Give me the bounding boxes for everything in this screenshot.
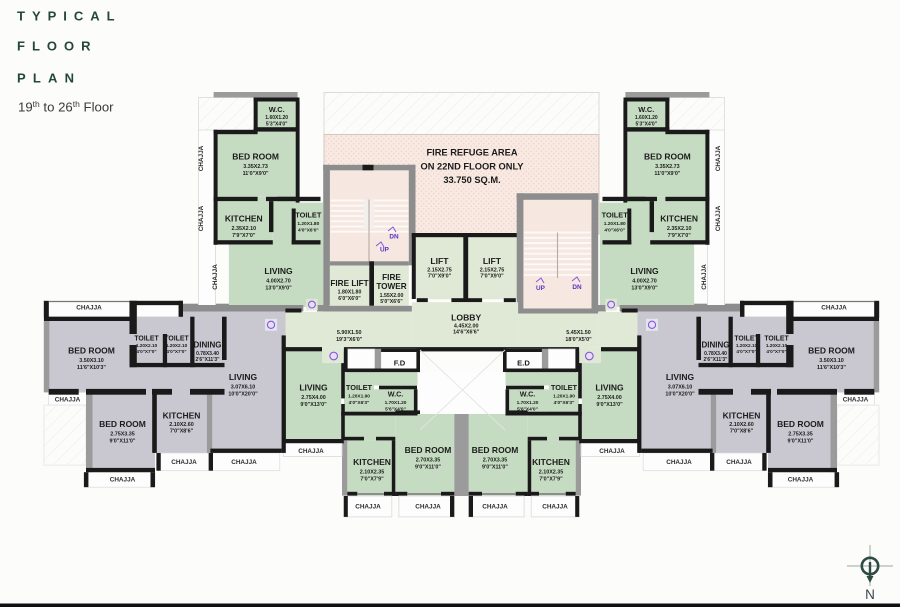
svg-text:CHAJJA: CHAJJA	[171, 459, 197, 466]
svg-text:1.70X1.20: 1.70X1.20	[517, 400, 539, 406]
svg-text:LIFT: LIFT	[430, 256, 449, 266]
svg-text:E.D: E.D	[517, 359, 530, 368]
svg-text:4.00X2.70: 4.00X2.70	[266, 279, 291, 285]
svg-text:2.35X2.10: 2.35X2.10	[232, 226, 257, 232]
svg-text:0.78X3.40: 0.78X3.40	[704, 351, 727, 357]
svg-text:3.35X2.73: 3.35X2.73	[655, 164, 680, 170]
svg-text:KITCHEN: KITCHEN	[723, 411, 761, 421]
svg-text:5'6"X4'0": 5'6"X4'0"	[385, 406, 406, 412]
svg-text:1.20X1.80: 1.20X1.80	[604, 221, 626, 227]
svg-text:9'0"X13'0": 9'0"X13'0"	[300, 402, 327, 408]
svg-text:BED ROOM: BED ROOM	[644, 152, 691, 162]
svg-text:5'3"X4'0": 5'3"X4'0"	[636, 122, 658, 128]
svg-text:10'0"X20'0": 10'0"X20'0"	[665, 391, 695, 397]
svg-text:CHAJJA: CHAJJA	[198, 205, 205, 231]
svg-text:CHAJJA: CHAJJA	[110, 477, 136, 484]
svg-text:2.10X2.60: 2.10X2.60	[169, 422, 194, 428]
svg-text:11'6"X10'3": 11'6"X10'3"	[817, 365, 846, 371]
svg-text:LIVING: LIVING	[229, 372, 258, 382]
svg-text:LIVING: LIVING	[264, 266, 293, 276]
svg-text:7'0"X9'0": 7'0"X9'0"	[428, 274, 452, 280]
svg-text:14'6"X6'6": 14'6"X6'6"	[453, 329, 480, 335]
svg-text:2.10X2.35: 2.10X2.35	[539, 469, 564, 475]
svg-text:TYPICAL: TYPICAL	[17, 8, 122, 23]
svg-text:TOWER: TOWER	[376, 282, 406, 291]
svg-text:BED ROOM: BED ROOM	[777, 419, 824, 429]
svg-text:CHAJJA: CHAJJA	[55, 397, 81, 404]
svg-text:W.C.: W.C.	[638, 105, 654, 114]
svg-text:7'0"X7'9": 7'0"X7'9"	[360, 476, 384, 482]
svg-text:2.75X3.35: 2.75X3.35	[788, 432, 813, 438]
svg-text:5'3"X4'0": 5'3"X4'0"	[266, 122, 288, 128]
svg-text:11'0"X9'0": 11'0"X9'0"	[654, 171, 680, 177]
svg-text:W.C.: W.C.	[388, 390, 404, 399]
svg-text:4.00X2.70: 4.00X2.70	[632, 279, 657, 285]
svg-text:TOILET: TOILET	[346, 383, 373, 392]
svg-text:5'0"X6'6": 5'0"X6'6"	[380, 299, 403, 305]
svg-text:LOBBY: LOBBY	[451, 313, 481, 323]
svg-text:9'0"X11'0": 9'0"X11'0"	[482, 464, 508, 470]
svg-text:CHAJJA: CHAJJA	[701, 264, 708, 290]
svg-text:UP: UP	[536, 285, 546, 292]
svg-text:CHAJJA: CHAJJA	[666, 459, 692, 466]
svg-text:3.50X3.10: 3.50X3.10	[819, 358, 844, 364]
svg-text:CHAJJA: CHAJJA	[415, 503, 441, 510]
svg-text:DN: DN	[389, 234, 399, 241]
svg-text:CHAJJA: CHAJJA	[788, 477, 814, 484]
svg-text:LIVING: LIVING	[630, 266, 659, 276]
svg-text:4'0"X6'3": 4'0"X6'3"	[349, 400, 370, 406]
svg-text:1.20X1.90: 1.20X1.90	[348, 394, 370, 400]
svg-text:CHAJJA: CHAJJA	[599, 448, 625, 455]
svg-text:2.10X2.35: 2.10X2.35	[360, 469, 385, 475]
svg-text:4'0"X7'0": 4'0"X7'0"	[736, 349, 756, 354]
svg-text:CHAJJA: CHAJJA	[76, 305, 102, 312]
svg-text:4'0"X6'0": 4'0"X6'0"	[604, 228, 625, 234]
svg-text:1.20X2.10: 1.20X2.10	[766, 343, 788, 348]
svg-text:W.C.: W.C.	[269, 105, 285, 114]
svg-text:BED ROOM: BED ROOM	[68, 346, 115, 356]
svg-text:7'9"X7'0": 7'9"X7'0"	[232, 233, 256, 239]
svg-text:7'0"X8'6": 7'0"X8'6"	[730, 429, 754, 435]
svg-text:TOILET: TOILET	[764, 336, 789, 343]
svg-text:4'0"X6'0": 4'0"X6'0"	[298, 228, 319, 234]
svg-text:CHAJJA: CHAJJA	[843, 397, 869, 404]
svg-text:CHAJJA: CHAJJA	[715, 145, 722, 171]
svg-text:2.15X2.75: 2.15X2.75	[427, 267, 452, 273]
svg-text:2.70X3.35: 2.70X3.35	[483, 457, 508, 463]
svg-text:1.60X1.20: 1.60X1.20	[635, 115, 658, 121]
svg-text:FIRE LIFT: FIRE LIFT	[330, 279, 368, 288]
svg-text:BED ROOM: BED ROOM	[808, 346, 855, 356]
svg-text:CHAJJA: CHAJJA	[726, 459, 752, 466]
svg-text:TOILET: TOILET	[734, 336, 759, 343]
svg-text:1.70X1.20: 1.70X1.20	[385, 400, 407, 406]
svg-text:9'0"X11'0": 9'0"X11'0"	[788, 439, 814, 445]
svg-text:N: N	[865, 587, 875, 602]
svg-text:CHAJJA: CHAJJA	[355, 503, 381, 510]
svg-text:FIRE REFUGE AREA: FIRE REFUGE AREA	[426, 148, 517, 158]
svg-text:2.35X2.10: 2.35X2.10	[667, 226, 692, 232]
svg-text:4'0"X7'0": 4'0"X7'0"	[136, 349, 156, 354]
svg-text:3.07X6.10: 3.07X6.10	[668, 384, 693, 390]
svg-text:2.15X2.75: 2.15X2.75	[480, 267, 505, 273]
svg-text:1.20X1.80: 1.20X1.80	[297, 221, 319, 227]
svg-text:1.20X2.10: 1.20X2.10	[166, 343, 188, 348]
svg-text:FIRE: FIRE	[382, 273, 401, 282]
svg-text:9'0"X11'0": 9'0"X11'0"	[110, 439, 136, 445]
svg-text:7'9"X7'0": 7'9"X7'0"	[668, 233, 692, 239]
svg-text:9'0"X13'0": 9'0"X13'0"	[596, 402, 623, 408]
svg-text:CHAJJA: CHAJJA	[212, 264, 219, 290]
svg-text:CHAJJA: CHAJJA	[715, 205, 722, 231]
svg-text:LIVING: LIVING	[299, 383, 328, 393]
svg-text:5.45X1.50: 5.45X1.50	[566, 330, 591, 336]
svg-text:10'0"X20'0": 10'0"X20'0"	[228, 391, 258, 397]
svg-text:LIVING: LIVING	[666, 372, 695, 382]
svg-text:KITCHEN: KITCHEN	[225, 214, 263, 224]
svg-text:1.20X2.10: 1.20X2.10	[136, 343, 158, 348]
svg-text:11'0"X9'0": 11'0"X9'0"	[243, 171, 269, 177]
svg-text:TOILET: TOILET	[551, 383, 578, 392]
svg-text:KITCHEN: KITCHEN	[353, 457, 391, 467]
svg-text:1.60X1.20: 1.60X1.20	[265, 115, 288, 121]
svg-text:ON 22ND FLOOR ONLY: ON 22ND FLOOR ONLY	[421, 161, 525, 171]
svg-text:3.07X6.10: 3.07X6.10	[231, 384, 256, 390]
svg-text:DINING: DINING	[702, 341, 730, 350]
svg-text:7'0"X9'0": 7'0"X9'0"	[480, 274, 504, 280]
svg-text:BED ROOM: BED ROOM	[99, 419, 146, 429]
svg-text:19'3"X6'0": 19'3"X6'0"	[336, 337, 363, 343]
svg-text:CHAJJA: CHAJJA	[198, 145, 205, 171]
svg-text:4'0"X7'0": 4'0"X7'0"	[766, 349, 786, 354]
svg-text:1.55X2.00: 1.55X2.00	[380, 293, 404, 299]
svg-text:2.70X3.35: 2.70X3.35	[416, 457, 441, 463]
svg-text:2'6"X11'3": 2'6"X11'3"	[195, 357, 220, 363]
svg-text:4'0"X6'3": 4'0"X6'3"	[554, 400, 575, 406]
svg-text:DN: DN	[572, 284, 582, 291]
svg-text:KITCHEN: KITCHEN	[660, 214, 698, 224]
svg-text:DINING: DINING	[194, 341, 222, 350]
svg-text:6'0"X6'0": 6'0"X6'0"	[338, 296, 361, 302]
svg-text:19th to 26th Floor: 19th to 26th Floor	[18, 99, 114, 115]
svg-text:LIVING: LIVING	[595, 383, 624, 393]
svg-text:1.20X2.10: 1.20X2.10	[736, 343, 758, 348]
svg-text:2.75X4.00: 2.75X4.00	[597, 395, 622, 401]
svg-text:CHAJJA: CHAJJA	[482, 503, 508, 510]
svg-text:1.20X1.90: 1.20X1.90	[553, 394, 575, 400]
svg-text:5.90X1.50: 5.90X1.50	[337, 330, 362, 336]
svg-text:TOILET: TOILET	[295, 211, 322, 220]
svg-text:2.75X3.35: 2.75X3.35	[110, 432, 135, 438]
svg-text:9'0"X11'0": 9'0"X11'0"	[415, 464, 441, 470]
svg-text:2.10X2.60: 2.10X2.60	[729, 422, 754, 428]
svg-text:CHAJJA: CHAJJA	[821, 305, 847, 312]
svg-text:CHAJJA: CHAJJA	[231, 459, 257, 466]
svg-text:13'0"X9'0": 13'0"X9'0"	[265, 286, 292, 292]
svg-text:5'6"X4'0": 5'6"X4'0"	[517, 406, 538, 412]
svg-text:FLOOR: FLOOR	[17, 38, 98, 53]
svg-text:BED ROOM: BED ROOM	[405, 445, 452, 455]
svg-text:2.75X4.00: 2.75X4.00	[301, 395, 326, 401]
svg-text:11'6"X10'3": 11'6"X10'3"	[77, 365, 106, 371]
svg-text:KITCHEN: KITCHEN	[163, 411, 201, 421]
svg-text:18'0"X5'0": 18'0"X5'0"	[565, 337, 592, 343]
svg-text:0.78X3.40: 0.78X3.40	[196, 351, 219, 357]
svg-text:F.D: F.D	[394, 359, 406, 368]
svg-text:2'6"X11'3": 2'6"X11'3"	[703, 357, 728, 363]
svg-text:3.35X2.73: 3.35X2.73	[243, 164, 268, 170]
svg-text:PLAN: PLAN	[17, 70, 81, 85]
svg-text:W.C.: W.C.	[520, 390, 536, 399]
svg-text:3.50X3.10: 3.50X3.10	[79, 358, 104, 364]
svg-text:7'0"X7'9": 7'0"X7'9"	[539, 476, 563, 482]
svg-text:33.750 SQ.M.: 33.750 SQ.M.	[443, 175, 500, 185]
svg-text:LIFT: LIFT	[483, 256, 502, 266]
svg-text:TOILET: TOILET	[602, 211, 629, 220]
svg-text:KITCHEN: KITCHEN	[532, 457, 570, 467]
svg-text:TOILET: TOILET	[134, 336, 159, 343]
svg-text:13'0"X9'0": 13'0"X9'0"	[631, 286, 658, 292]
svg-text:UP: UP	[380, 247, 390, 254]
svg-text:CHAJJA: CHAJJA	[298, 448, 324, 455]
svg-text:TOILET: TOILET	[164, 336, 189, 343]
svg-text:BED ROOM: BED ROOM	[472, 445, 519, 455]
svg-text:4'0"X7'0": 4'0"X7'0"	[166, 349, 186, 354]
svg-text:7'0"X8'6": 7'0"X8'6"	[170, 429, 194, 435]
svg-text:CHAJJA: CHAJJA	[542, 503, 568, 510]
svg-text:1.80X1.80: 1.80X1.80	[338, 290, 362, 296]
svg-text:BED ROOM: BED ROOM	[232, 152, 279, 162]
